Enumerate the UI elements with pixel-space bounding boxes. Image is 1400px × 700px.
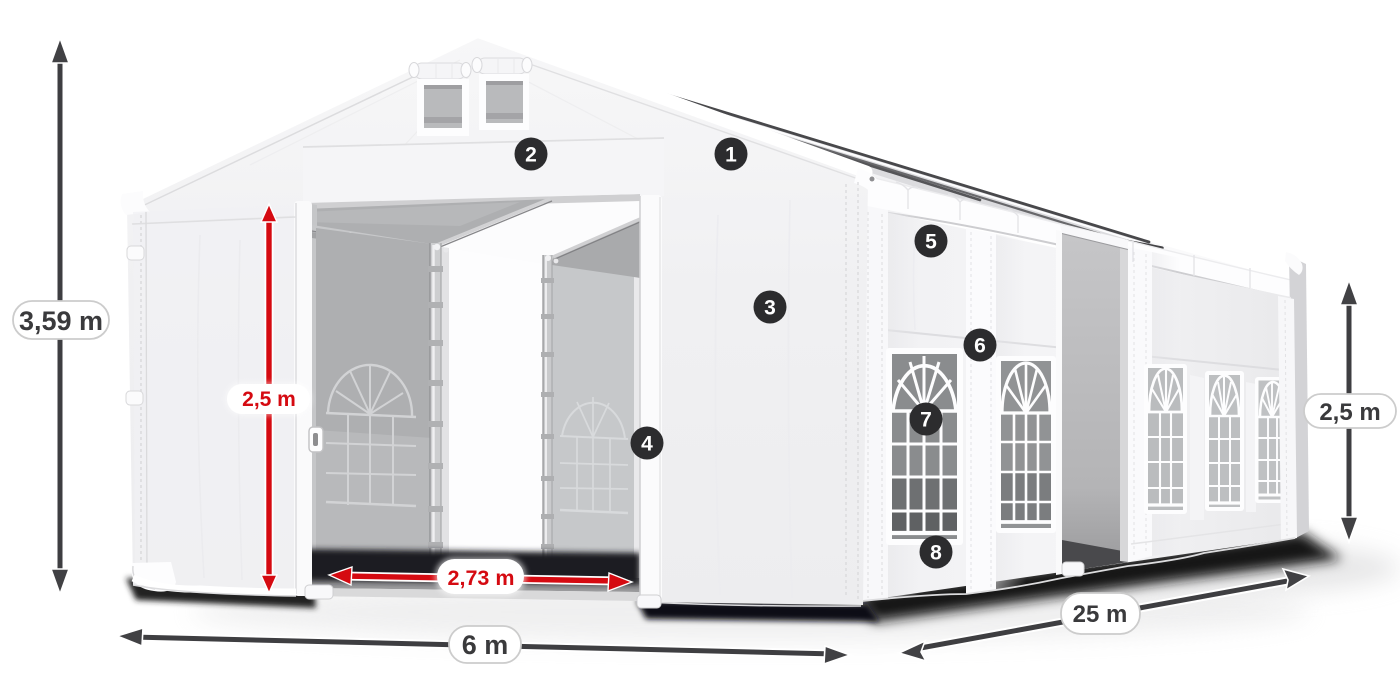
svg-text:25 m: 25 m — [1073, 601, 1128, 628]
svg-text:7: 7 — [920, 409, 932, 432]
svg-text:2,5 m: 2,5 m — [1319, 399, 1380, 426]
svg-text:4: 4 — [641, 433, 653, 456]
svg-text:2,5 m: 2,5 m — [242, 388, 296, 411]
svg-text:6 m: 6 m — [462, 630, 509, 660]
svg-text:8: 8 — [930, 542, 942, 565]
svg-text:5: 5 — [925, 231, 937, 254]
svg-text:3,59 m: 3,59 m — [19, 306, 103, 336]
svg-text:6: 6 — [974, 335, 986, 358]
svg-text:2: 2 — [525, 144, 537, 167]
svg-text:2,73 m: 2,73 m — [448, 566, 515, 590]
svg-text:3: 3 — [764, 297, 776, 320]
svg-text:1: 1 — [725, 144, 737, 167]
